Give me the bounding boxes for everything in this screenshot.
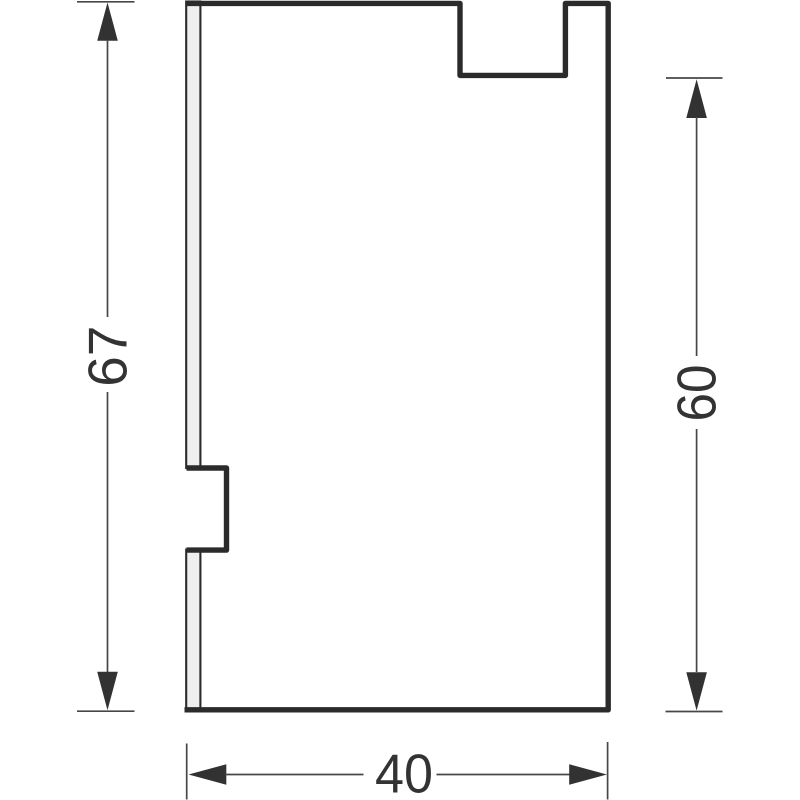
- svg-text:60: 60: [666, 365, 728, 422]
- svg-text:40: 40: [375, 742, 433, 800]
- svg-text:67: 67: [76, 326, 138, 387]
